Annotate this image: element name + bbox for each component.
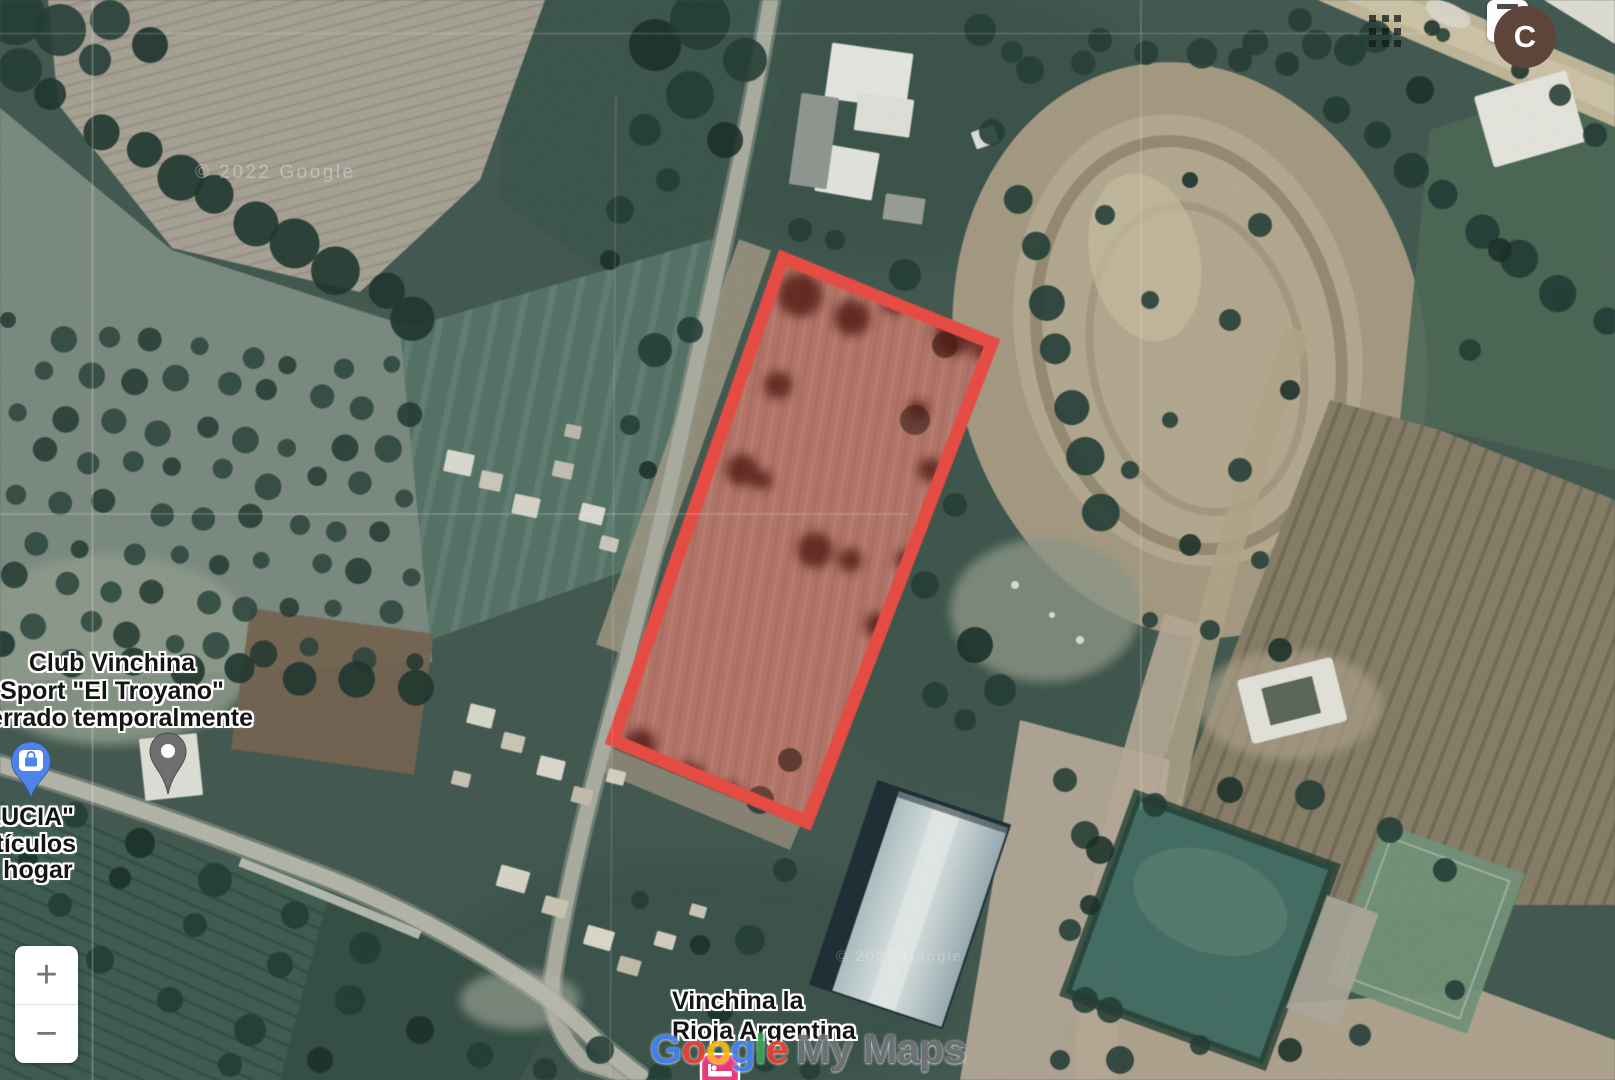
zoom-in-button[interactable]: + — [15, 946, 78, 1005]
apps-grid-icon — [1369, 15, 1401, 47]
account-avatar[interactable]: C — [1494, 6, 1556, 68]
map-canvas[interactable]: © 2022 Google © 2022 Google Club Vinchin… — [0, 0, 1615, 1080]
zoom-out-button[interactable]: − — [15, 1005, 78, 1063]
my-maps-wordmark: My Maps — [796, 1026, 966, 1072]
club-pin[interactable] — [147, 732, 189, 798]
pin-dot-icon — [161, 744, 175, 758]
store-pin[interactable] — [10, 741, 52, 801]
zoom-control: + − — [15, 946, 78, 1063]
satellite-imagery — [0, 0, 1615, 1080]
watermark: GoogleMy Maps — [650, 1026, 966, 1073]
google-logo[interactable]: Google — [650, 1026, 788, 1072]
